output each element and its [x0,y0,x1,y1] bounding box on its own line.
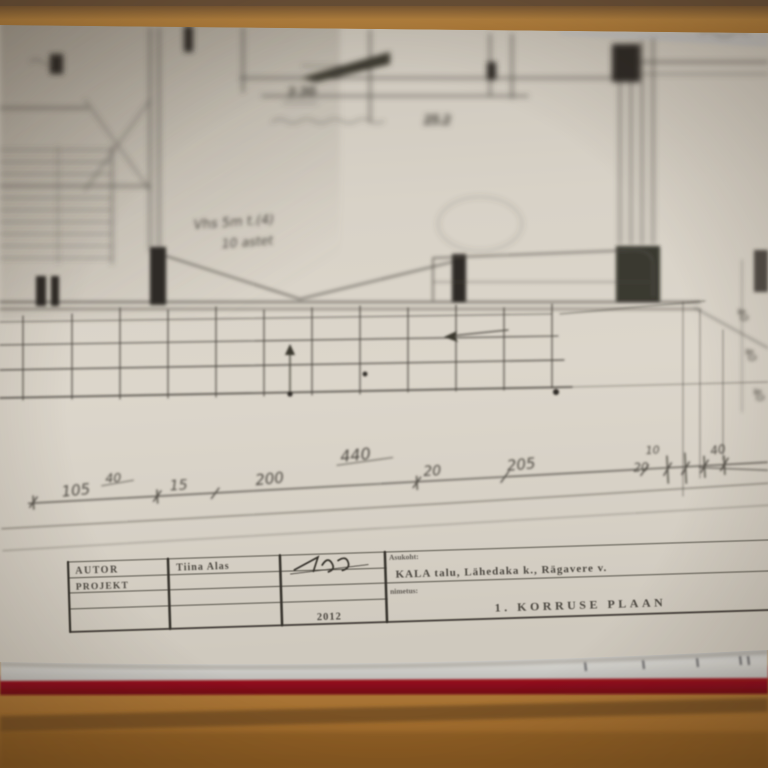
photo-composition: 2.20 25.2 [0,0,768,768]
vignette-overlay [0,0,768,768]
photo-scene: 2.20 25.2 [0,0,768,768]
